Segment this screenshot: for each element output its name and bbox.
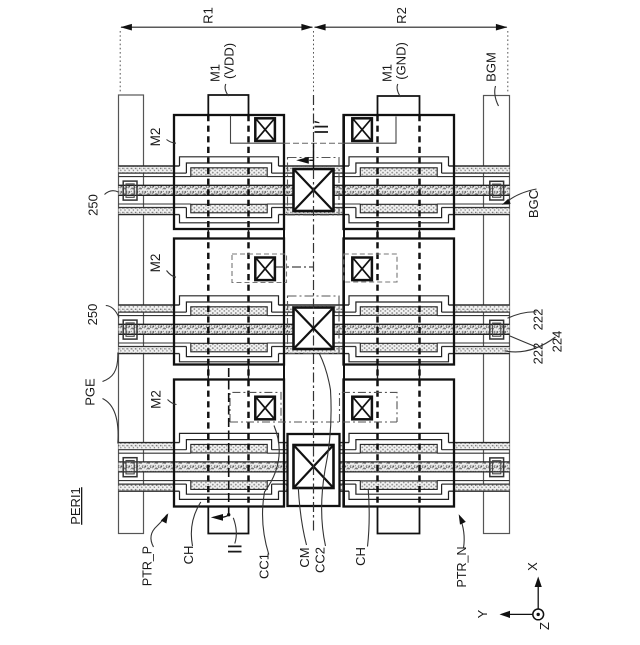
svg-text:PGE: PGE: [83, 378, 98, 406]
svg-text:II′: II′: [312, 120, 333, 135]
svg-text:CH: CH: [353, 547, 368, 566]
svg-text:Y: Y: [475, 609, 490, 618]
svg-text:M2: M2: [148, 254, 163, 273]
svg-text:X: X: [525, 562, 540, 571]
svg-text:222: 222: [531, 343, 546, 365]
svg-text:(GND): (GND): [394, 42, 409, 80]
svg-text:Z: Z: [537, 622, 552, 630]
svg-text:R1: R1: [201, 7, 216, 24]
svg-text:R2: R2: [394, 7, 409, 24]
svg-text:BGM: BGM: [484, 52, 499, 82]
svg-text:PTR_N: PTR_N: [455, 547, 469, 588]
svg-text:CC1: CC1: [257, 553, 272, 579]
svg-text:250: 250: [86, 194, 101, 216]
svg-text:M2: M2: [149, 390, 164, 409]
svg-text:M1: M1: [208, 64, 223, 82]
svg-text:CM: CM: [297, 547, 312, 567]
svg-text:PERI1: PERI1: [68, 487, 83, 525]
svg-text:224: 224: [550, 331, 565, 353]
svg-text:(VDD): (VDD): [222, 43, 237, 79]
svg-text:II: II: [225, 544, 246, 555]
svg-text:BGC: BGC: [526, 190, 541, 218]
svg-text:CC2: CC2: [313, 547, 328, 573]
svg-text:PTR_P: PTR_P: [141, 546, 155, 586]
svg-text:M1: M1: [380, 64, 395, 82]
svg-text:M2: M2: [148, 128, 163, 147]
svg-text:222: 222: [531, 309, 546, 331]
svg-text:250: 250: [85, 304, 100, 326]
svg-text:CH: CH: [181, 546, 196, 565]
